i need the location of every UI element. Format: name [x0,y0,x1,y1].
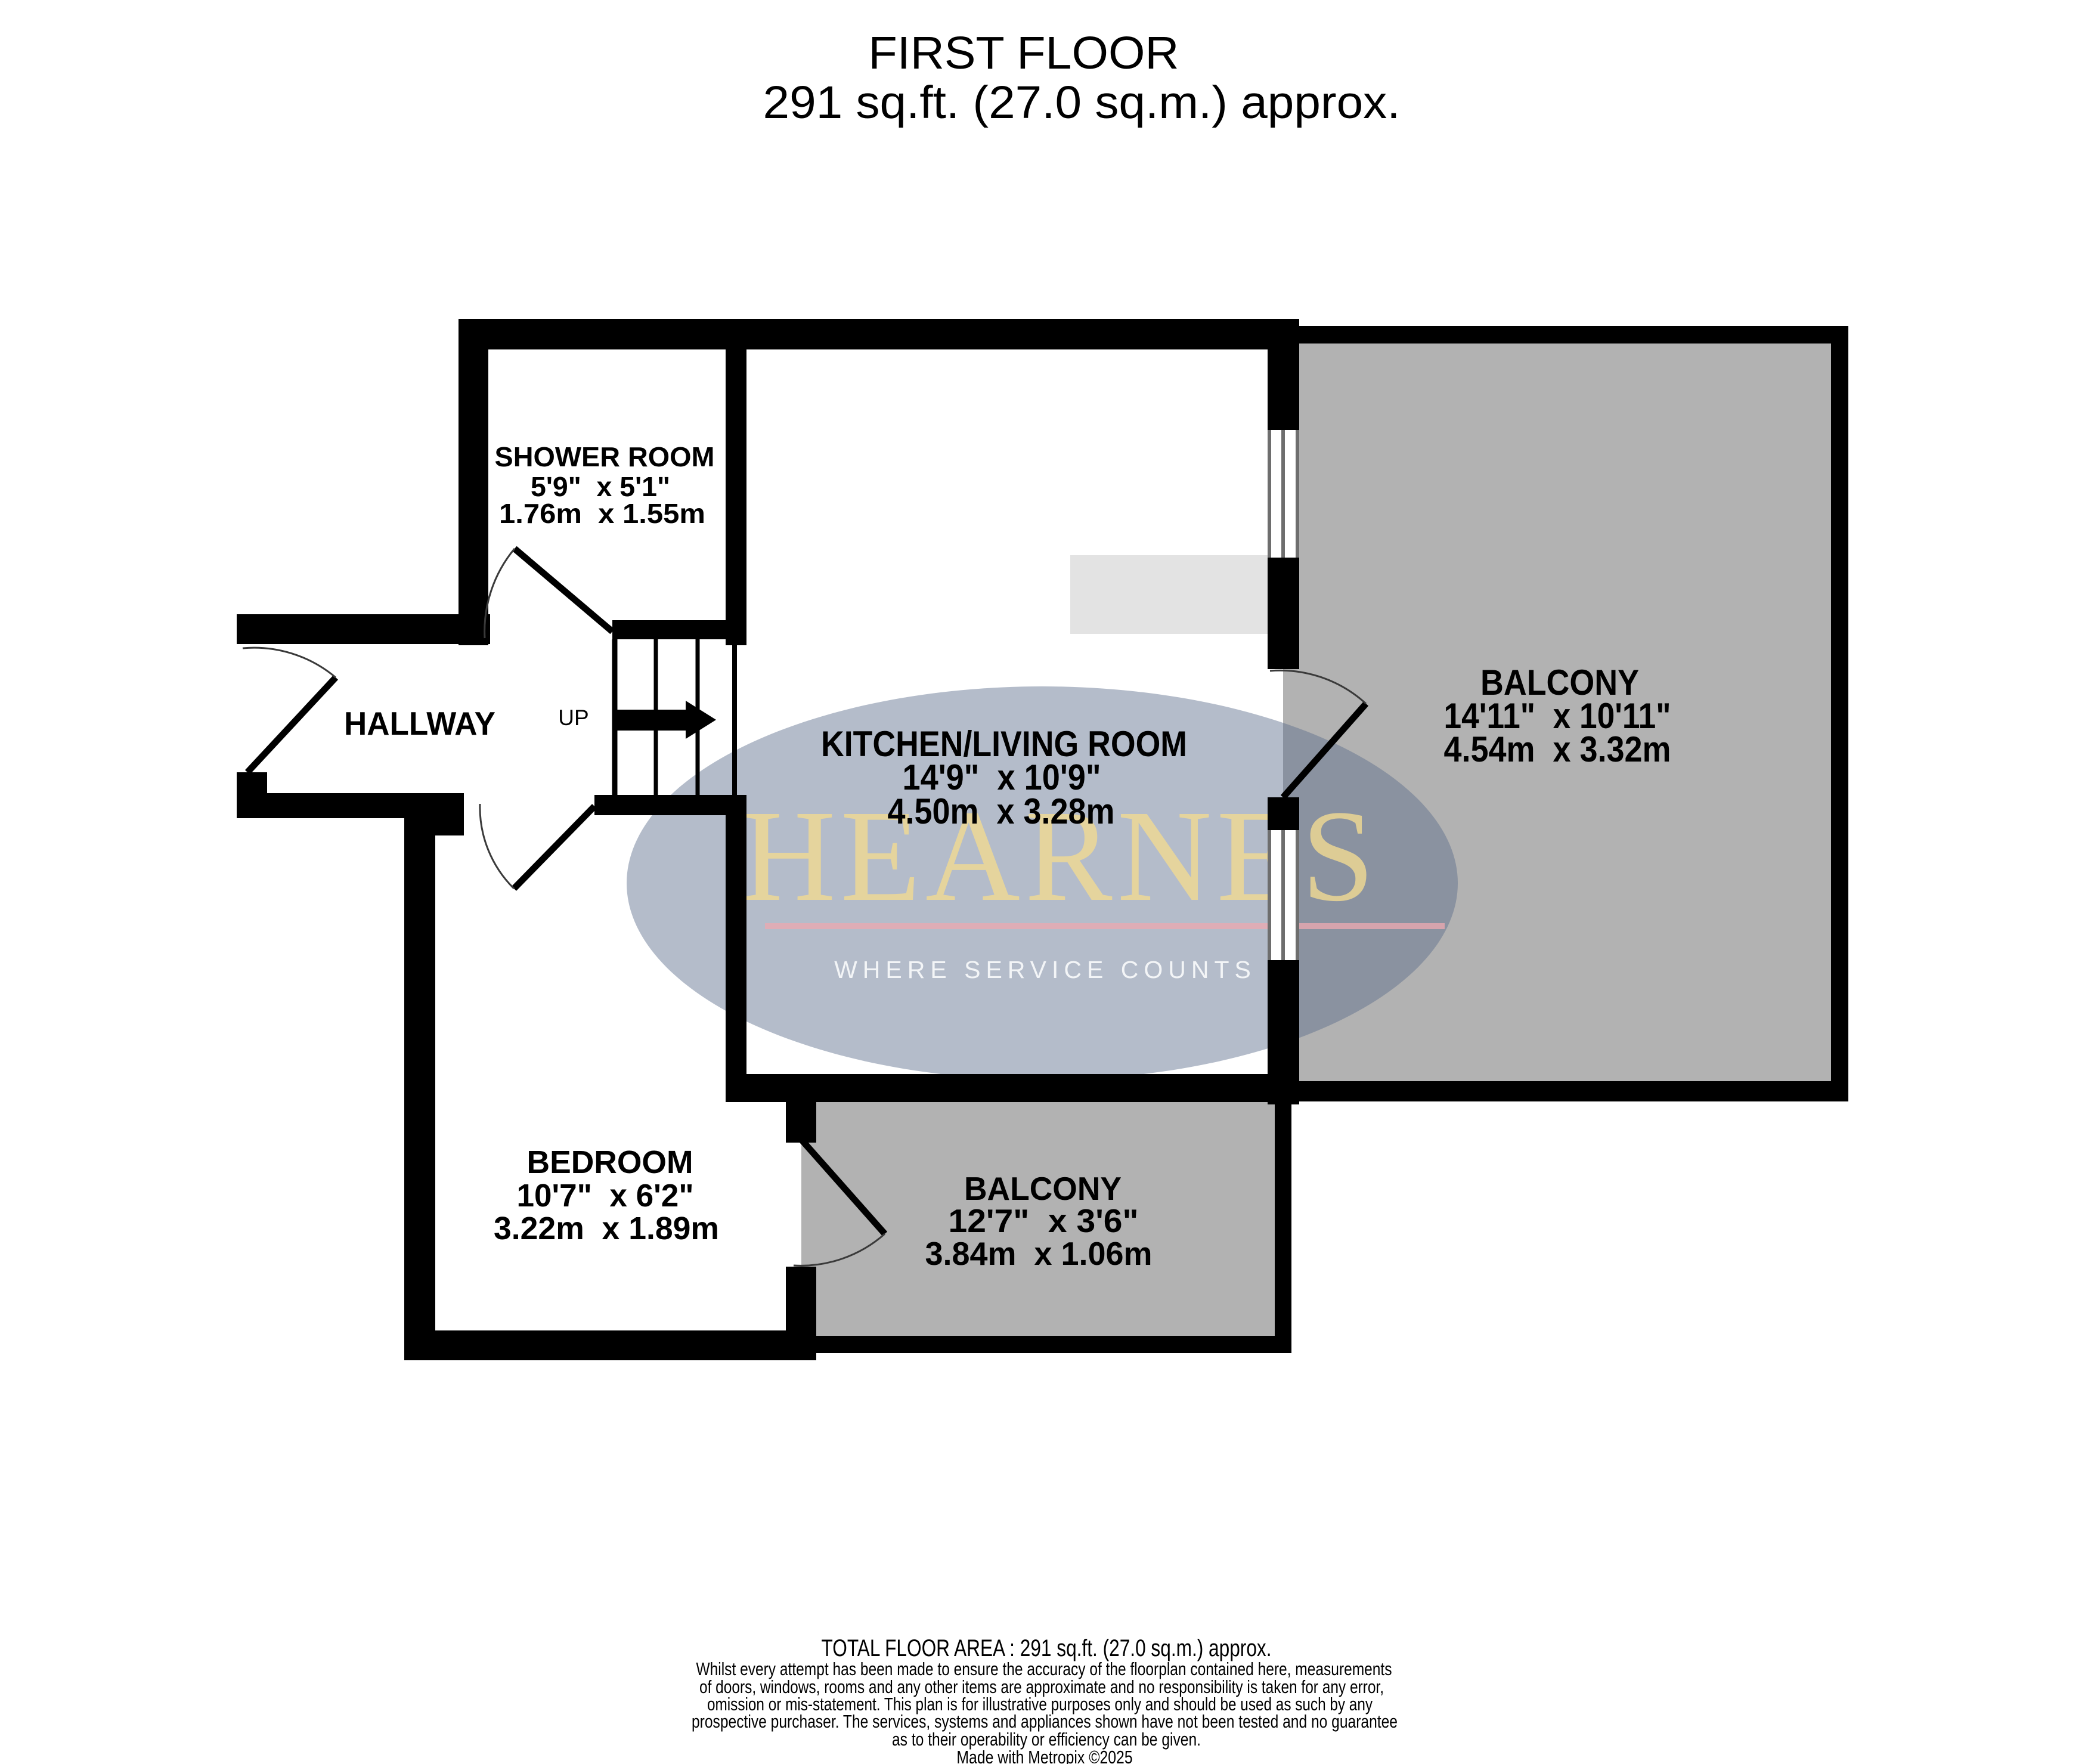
svg-text:TOTAL FLOOR AREA : 291 sq.ft.: TOTAL FLOOR AREA : 291 sq.ft. (27.0 sq.m… [822,1635,1272,1661]
svg-text:10'7" x 6'2": 10'7" x 6'2" [517,1178,694,1214]
svg-text:BEDROOM: BEDROOM [527,1144,693,1180]
svg-text:Made with Metropix ©2025: Made with Metropix ©2025 [956,1747,1132,1764]
svg-text:BALCONY: BALCONY [964,1170,1122,1207]
svg-text:UP: UP [558,705,588,730]
svg-text:3.22m x 1.89m: 3.22m x 1.89m [494,1211,719,1246]
svg-text:WHERE SERVICE COUNTS: WHERE SERVICE COUNTS [834,956,1256,983]
svg-text:FIRST FLOOR: FIRST FLOOR [869,27,1179,79]
svg-text:1.76m x 1.55m: 1.76m x 1.55m [499,498,705,529]
svg-text:291 sq.ft. (27.0 sq.m.) approx: 291 sq.ft. (27.0 sq.m.) approx. [763,77,1401,128]
svg-text:HALLWAY: HALLWAY [344,705,495,742]
svg-text:SHOWER ROOM: SHOWER ROOM [495,441,715,472]
svg-text:4.50m x 3.28m: 4.50m x 3.28m [888,791,1115,831]
svg-text:3.84m x 1.06m: 3.84m x 1.06m [925,1235,1153,1272]
svg-text:4.54m x 3.32m: 4.54m x 3.32m [1444,729,1671,769]
svg-text:12'7" x 3'6": 12'7" x 3'6" [949,1202,1139,1239]
